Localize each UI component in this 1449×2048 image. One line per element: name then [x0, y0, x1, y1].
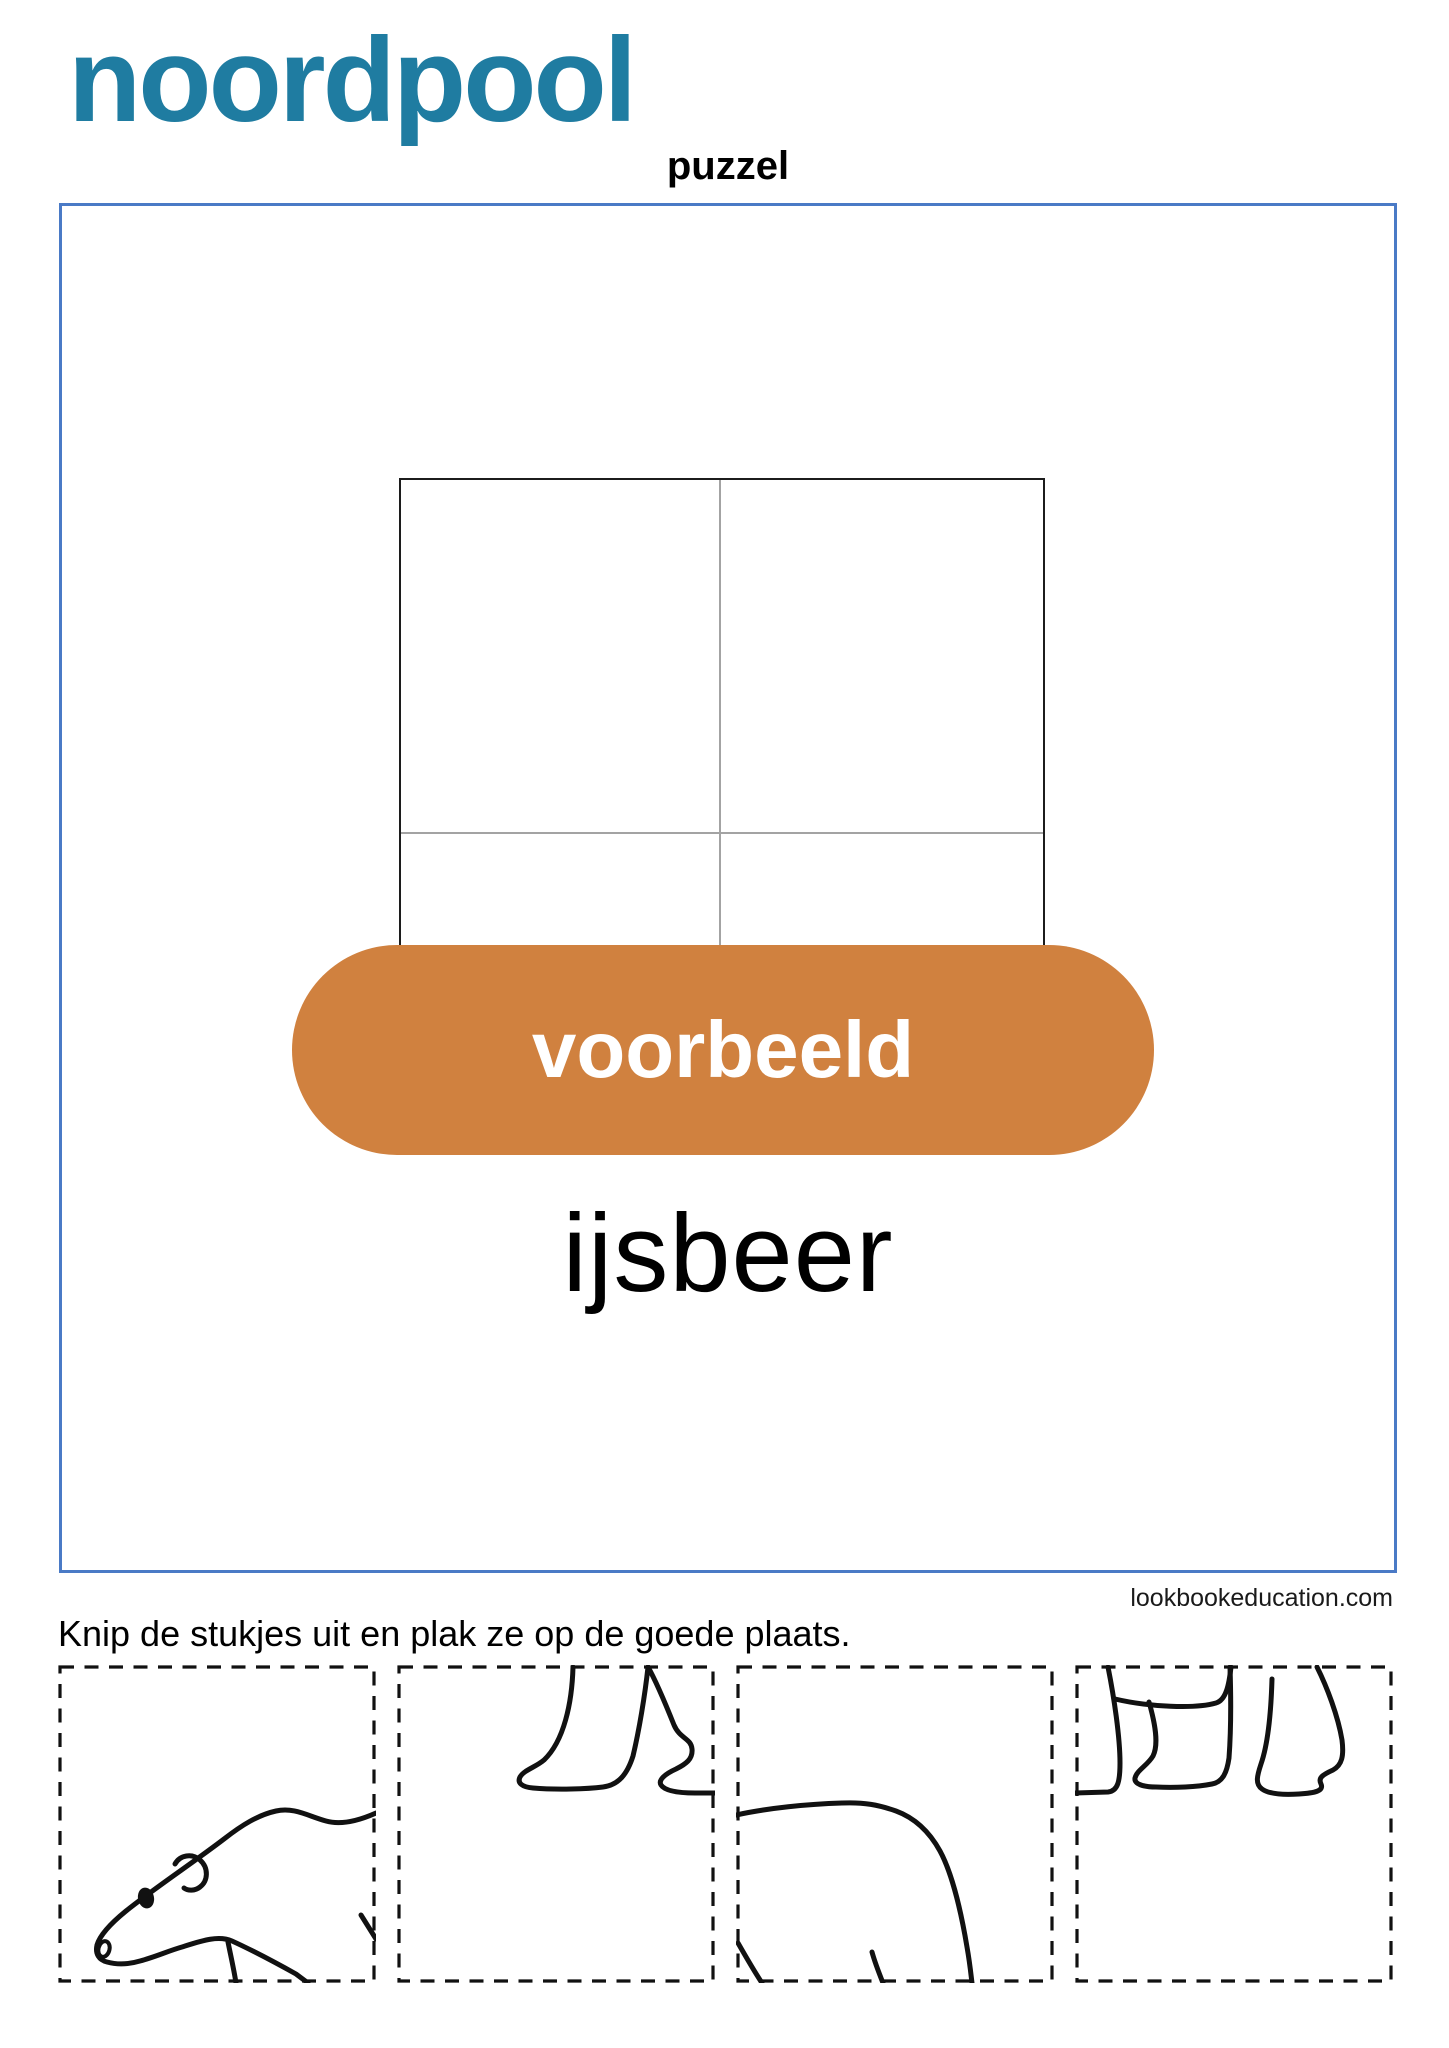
example-badge: voorbeeld — [292, 945, 1154, 1155]
polar-bear-hind-legs-drawing — [1075, 1665, 1393, 1983]
grid-cell-top-right — [721, 480, 1039, 832]
dashed-cut-border — [738, 1667, 1052, 1981]
dashed-cut-border — [399, 1667, 713, 1981]
piece-box-3 — [736, 1665, 1054, 1983]
piece-box-2 — [397, 1665, 715, 1983]
grid-divider-horizontal — [401, 832, 1043, 834]
polar-bear-head-drawing — [58, 1665, 376, 1983]
polar-bear-front-legs-drawing — [397, 1665, 715, 1983]
page-subtitle: puzzel — [59, 146, 1397, 186]
instruction-text: Knip de stukjes uit en plak ze op de goe… — [58, 1612, 851, 1655]
credit-text: lookbookeducation.com — [59, 1586, 1393, 1611]
polar-bear-back-drawing — [736, 1665, 1054, 1983]
piece-box-1 — [58, 1665, 376, 1983]
page-title: noordpool — [68, 14, 634, 146]
grid-cell-top-left — [401, 480, 719, 832]
cutout-pieces-row — [0, 1665, 1449, 1983]
worksheet-page: noordpool puzzel voorbeeld ijsbeer lookb… — [0, 0, 1449, 2048]
piece-box-4 — [1075, 1665, 1393, 1983]
dashed-cut-border — [1077, 1667, 1391, 1981]
word-label: ijsbeer — [59, 1186, 1397, 1321]
dashed-cut-border — [60, 1667, 374, 1981]
example-badge-label: voorbeeld — [532, 1010, 914, 1090]
